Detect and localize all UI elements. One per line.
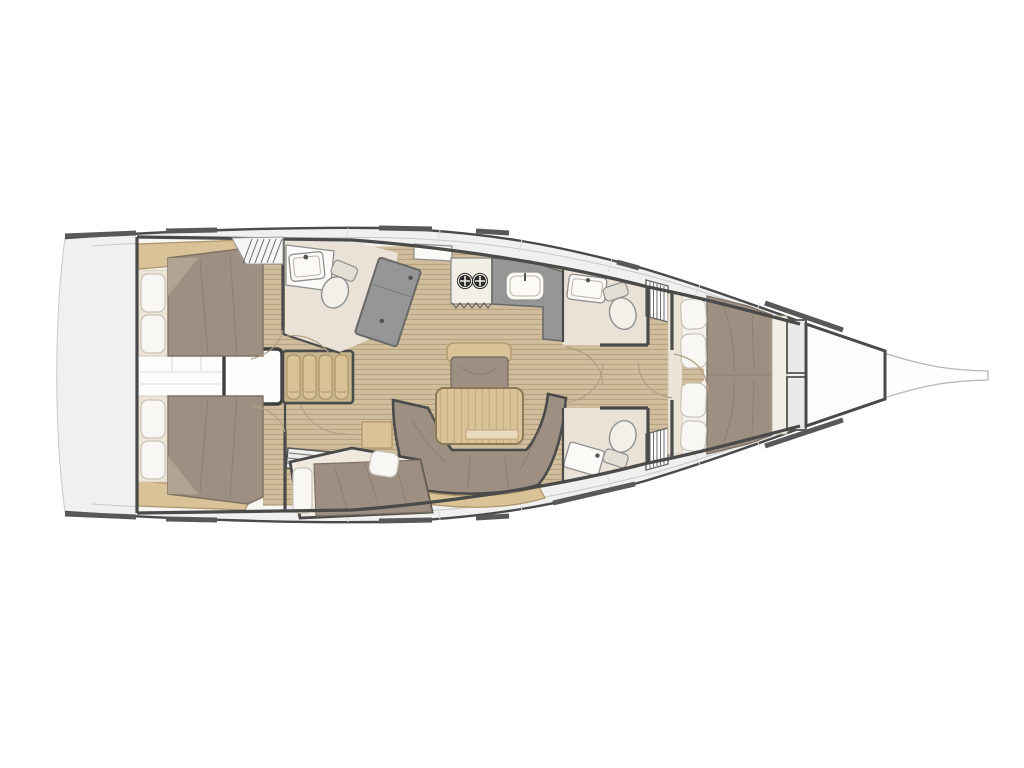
yacht-floorplan-page <box>0 0 1024 768</box>
pillow <box>141 315 165 353</box>
pillow <box>680 420 707 452</box>
pillow <box>680 383 706 418</box>
mid-cabin <box>286 448 432 518</box>
pillow <box>141 400 165 438</box>
headboard <box>668 294 682 454</box>
pillow <box>141 441 165 479</box>
floorplan-canvas <box>0 0 1024 768</box>
pillow <box>680 334 706 369</box>
berth-head-pillow <box>368 450 399 478</box>
burner-right <box>472 273 487 288</box>
bowsprit <box>884 353 988 398</box>
foot-shelf <box>772 316 787 434</box>
burner-left <box>457 273 472 288</box>
companionway-steps <box>283 351 353 403</box>
forepeak-locker <box>806 324 885 426</box>
aft-cabin-starboard <box>138 396 263 510</box>
pillow <box>680 298 707 330</box>
pillow <box>141 274 165 312</box>
teak-strip-aft-starboard <box>263 395 285 505</box>
berth-pillow <box>293 468 312 513</box>
side-table <box>362 422 392 448</box>
saloon-table <box>436 388 523 444</box>
